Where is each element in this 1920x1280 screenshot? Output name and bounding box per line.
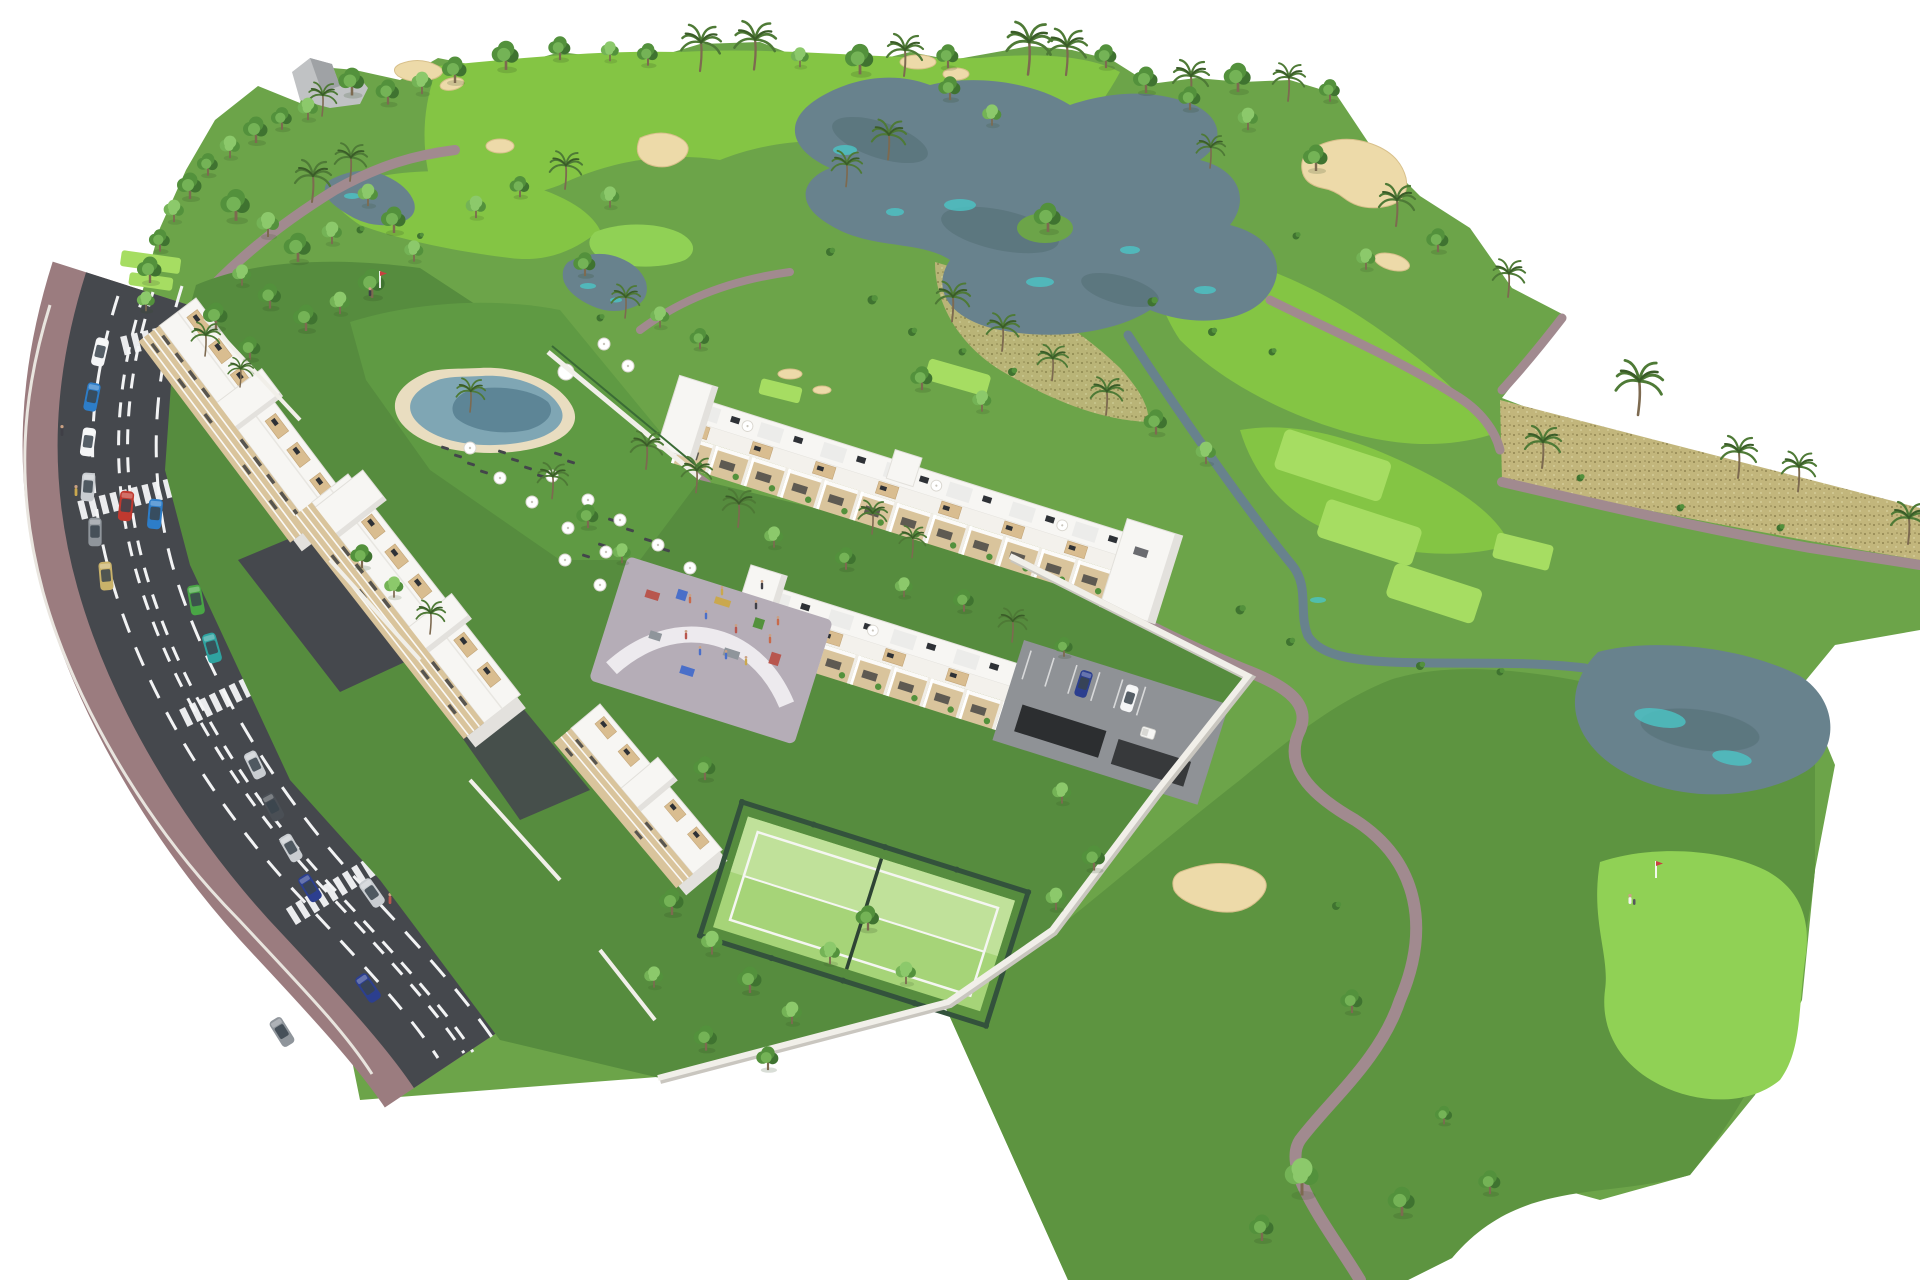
- parked-car: [98, 561, 114, 591]
- pedestrian: [74, 485, 77, 496]
- pedestrian: [60, 425, 63, 436]
- green-right-large: [1597, 851, 1807, 1099]
- bunker: [486, 139, 514, 153]
- masterplan-aerial-render: [0, 0, 1920, 1280]
- car: [268, 1016, 296, 1049]
- render-canvas: [0, 0, 1920, 1280]
- palm-icon: [1616, 360, 1663, 415]
- bunker: [813, 386, 831, 394]
- car: [147, 498, 164, 529]
- parked-car: [80, 472, 95, 501]
- parked-car: [88, 518, 101, 547]
- golfer-top: [369, 287, 372, 296]
- bunker: [778, 369, 802, 379]
